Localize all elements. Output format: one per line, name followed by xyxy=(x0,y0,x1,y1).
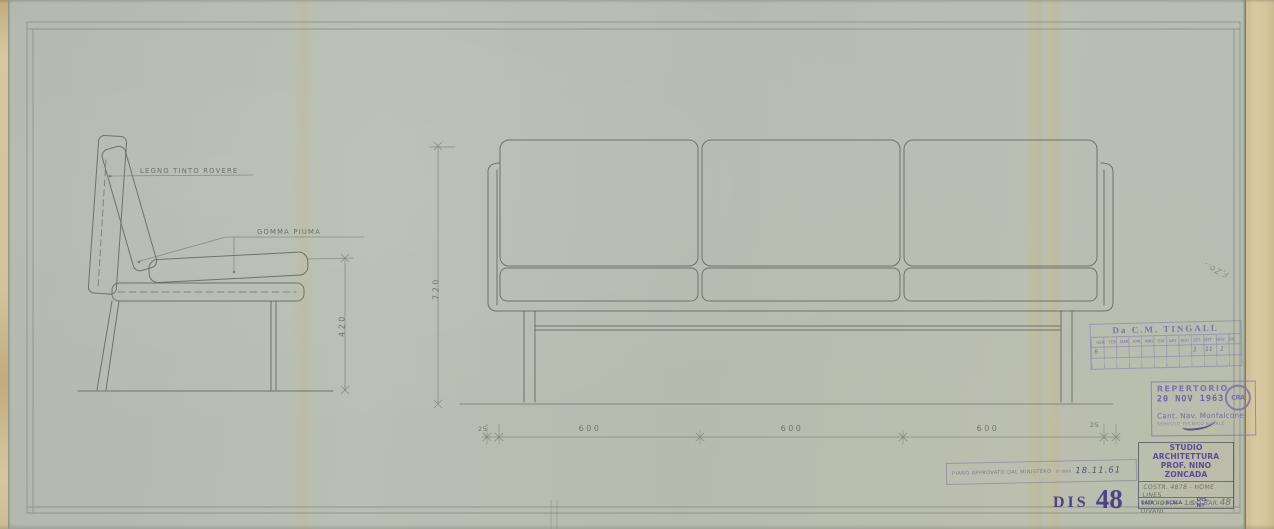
dim-end-right: 25 xyxy=(1090,421,1099,429)
dim-module-1: 600 xyxy=(575,424,605,433)
studio-line2: PROF. NINO ZONCADA xyxy=(1139,462,1233,480)
note-subject: DIVANI xyxy=(1140,508,1229,516)
backrest-cushion xyxy=(100,145,158,273)
drawing-sheet: LEGNO TINTO ROVERE GOMMA PIUMA 720 420 6… xyxy=(0,0,1274,529)
approval-date: 18.11.61 xyxy=(1075,465,1121,476)
seat-cushion xyxy=(148,252,308,283)
scala-label: SCALA xyxy=(1166,501,1182,506)
title-block: STUDIO ARCHITETTURA PROF. NINO ZONCADA C… xyxy=(1138,442,1234,509)
legs xyxy=(524,311,1072,402)
seat-cushion-1 xyxy=(500,268,698,301)
crda-logo-icon: CRA xyxy=(1225,385,1251,411)
signature-mark xyxy=(1182,419,1217,431)
stretcher-rail xyxy=(535,326,1061,330)
rear-leg xyxy=(271,301,276,390)
sheet-border xyxy=(27,22,1240,529)
front-leg xyxy=(97,301,119,390)
studio-stamp: STUDIO ARCHITETTURA PROF. NINO ZONCADA xyxy=(1139,443,1233,482)
back-cushion-3 xyxy=(904,140,1097,266)
dim-seat-height: 420 xyxy=(338,311,347,341)
front-elevation-drawing xyxy=(460,140,1113,404)
stamp-tick: 1 xyxy=(1193,346,1197,353)
seat-cushion-3 xyxy=(904,268,1097,301)
tingall-record-stamp: Da C.M. TINGALL GEN FEB MAR APR MAG GIU … xyxy=(1089,320,1242,370)
back-cushion-2 xyxy=(702,140,900,266)
studio-line1: STUDIO ARCHITETTURA xyxy=(1139,444,1233,462)
drawing-number-stamp: DIS 48 xyxy=(1053,489,1123,511)
scala-value: 1:5 xyxy=(1184,499,1194,507)
frame-side-edges xyxy=(497,170,1104,305)
dis-label: DIS. Nº xyxy=(1197,497,1218,509)
data-value: 49 xyxy=(1156,499,1164,507)
approval-in-data: in data xyxy=(1056,469,1072,474)
seat-cushion-2 xyxy=(702,268,900,301)
dis-number: 48 xyxy=(1096,489,1123,511)
ministero-approval-stamp: PIANO APPROVATO DAL MINISTERO in data 18… xyxy=(946,459,1137,485)
dis-prefix: DIS xyxy=(1053,495,1089,511)
dimension-lines xyxy=(109,142,1120,444)
data-label: DATA xyxy=(1141,501,1154,506)
dim-end-left: 25 xyxy=(478,425,487,433)
title-block-footer: DATA 49 SCALA 1:5 DIS. Nº 48 xyxy=(1139,497,1233,508)
back-cushion-1 xyxy=(500,140,698,266)
approval-text: PIANO APPROVATO DAL MINISTERO xyxy=(952,469,1052,477)
backrest-frame xyxy=(88,135,127,295)
material-note-wood: LEGNO TINTO ROVERE xyxy=(140,167,238,175)
sofa-frame xyxy=(488,163,1113,311)
repertorio-label: REPERTORIO xyxy=(1157,384,1229,394)
material-note-foam: GOMMA PIUMA xyxy=(257,228,321,236)
dim-module-2: 600 xyxy=(777,424,807,433)
stamp-tick: 6 xyxy=(1094,349,1098,356)
drawing-linework xyxy=(0,0,1274,529)
stamp-tick: 1 xyxy=(1220,346,1224,353)
stamp-tick: 11 xyxy=(1205,346,1213,353)
dis-value: 48 xyxy=(1220,498,1231,508)
repertorio-stamp: REPERTORIO 20 NOV 1963 CRA Cant. Nav. Mo… xyxy=(1151,380,1257,436)
repertorio-date: 20 NOV 1963 xyxy=(1157,394,1224,405)
hidden-edge xyxy=(98,160,106,288)
dim-module-3: 600 xyxy=(973,424,1003,433)
dim-total-height: 720 xyxy=(432,274,441,304)
